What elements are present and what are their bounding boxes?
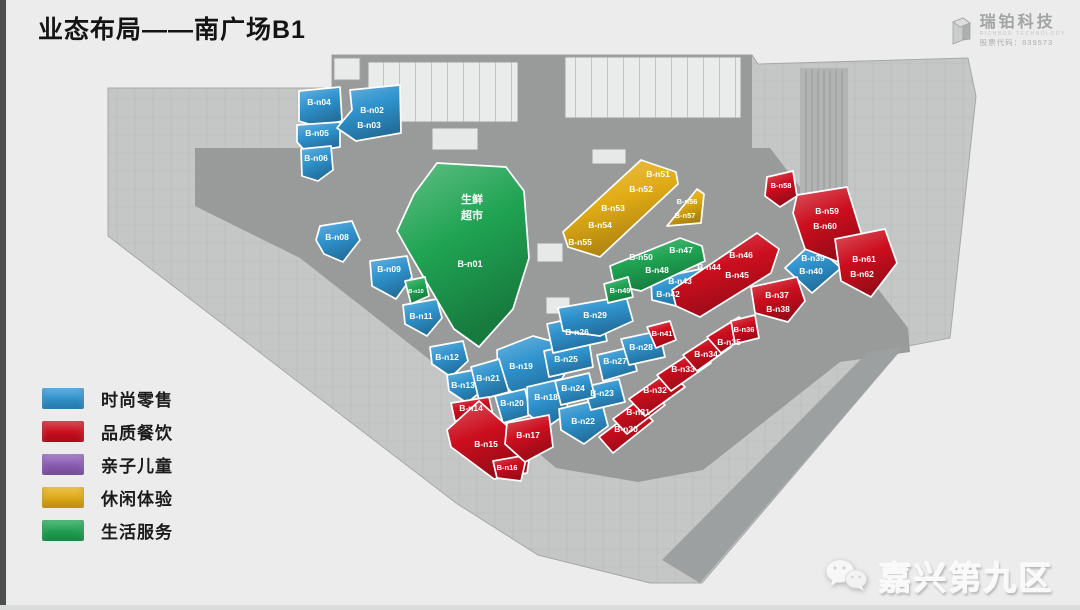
unit-B-n04 — [299, 87, 342, 127]
legend-item-retail: 时尚零售 — [42, 388, 173, 409]
unit-label-生鲜: 生鲜 — [461, 192, 483, 206]
unit-label-B-n20: B-n20 — [500, 398, 524, 408]
unit-label-B-n45: B-n45 — [725, 270, 749, 280]
legend-label-leisure: 休闲体验 — [101, 485, 173, 510]
unit-label-B-n49: B-n49 — [610, 286, 631, 295]
legend-label-kids: 亲子儿童 — [101, 452, 173, 477]
unit-label-B-n17: B-n17 — [516, 430, 540, 440]
structure-block-east — [565, 57, 741, 118]
unit-label-B-n44: B-n44 — [697, 262, 721, 272]
unit-label-B-n47: B-n47 — [669, 245, 693, 255]
unit-label-B-n19: B-n19 — [509, 361, 533, 371]
watermark-text: 嘉兴第九区 — [879, 552, 1054, 600]
unit-label-B-n32: B-n32 — [643, 385, 667, 395]
unit-label-B-n60: B-n60 — [813, 221, 837, 231]
unit-label-B-n27: B-n27 — [603, 356, 627, 366]
legend-swatch-leisure — [42, 487, 84, 508]
unit-label-B-n26: B-n26 — [565, 327, 589, 337]
unit-label-B-n06: B-n06 — [304, 153, 328, 163]
legend-swatch-kids — [42, 454, 84, 475]
company-logo: 瑞铂科技 RICHBOR TECHNOLOGY 股票代码：839573 — [949, 14, 1066, 48]
unit-label-B-n24: B-n24 — [561, 383, 585, 393]
unit-label-B-n56: B-n56 — [677, 197, 698, 206]
legend: 时尚零售品质餐饮亲子儿童休闲体验生活服务 — [42, 388, 173, 553]
core-3 — [592, 149, 626, 164]
unit-label-B-n52: B-n52 — [629, 184, 653, 194]
legend-item-life: 生活服务 — [42, 520, 173, 541]
unit-label-B-n55: B-n55 — [568, 237, 592, 247]
unit-label-B-n37: B-n37 — [765, 290, 789, 300]
unit-label-B-n43: B-n43 — [668, 276, 692, 286]
unit-label-B-n02: B-n02 — [360, 105, 384, 115]
unit-label-B-n54: B-n54 — [588, 220, 612, 230]
unit-label-B-n35: B-n35 — [717, 337, 741, 347]
slide-left-edge — [0, 0, 6, 610]
unit-label-B-n04: B-n04 — [307, 97, 331, 107]
unit-label-B-n53: B-n53 — [601, 203, 625, 213]
unit-label-B-n31: B-n31 — [626, 407, 650, 417]
legend-label-life: 生活服务 — [101, 518, 173, 543]
unit-label-B-n39: B-n39 — [801, 253, 825, 263]
unit-label-B-n40: B-n40 — [799, 266, 823, 276]
unit-label-B-n05: B-n05 — [305, 128, 329, 138]
unit-label-B-n12: B-n12 — [435, 352, 459, 362]
unit-label-B-n11: B-n11 — [409, 311, 432, 321]
unit-label-B-n41: B-n41 — [652, 329, 673, 338]
legend-swatch-retail — [42, 388, 84, 409]
unit-label-B-n13: B-n13 — [451, 380, 475, 390]
unit-label-B-n22: B-n22 — [571, 416, 595, 426]
unit-label-B-n34: B-n34 — [694, 349, 718, 359]
unit-label-B-n48: B-n48 — [645, 265, 669, 275]
unit-label-B-n14: B-n14 — [459, 403, 483, 413]
legend-label-dining: 品质餐饮 — [101, 419, 173, 444]
legend-item-leisure: 休闲体验 — [42, 487, 173, 508]
page-title: 业态布局——南广场B1 — [38, 10, 306, 46]
watermark: 嘉兴第九区 — [823, 552, 1054, 600]
logo-text: 瑞铂科技 RICHBOR TECHNOLOGY 股票代码：839573 — [980, 14, 1066, 48]
logo-stock-code: 股票代码：839573 — [980, 39, 1066, 48]
structure-small — [334, 58, 360, 80]
legend-swatch-dining — [42, 421, 84, 442]
logo-cube-icon — [949, 15, 973, 47]
unit-label-B-n01: B-n01 — [457, 259, 482, 269]
unit-label-超市: 超市 — [460, 208, 483, 222]
unit-label-B-n30: B-n30 — [614, 424, 638, 434]
unit-label-B-n42: B-n42 — [656, 289, 680, 299]
legend-label-retail: 时尚零售 — [101, 386, 173, 411]
unit-label-B-n15: B-n15 — [474, 439, 498, 449]
core-1 — [537, 243, 563, 262]
unit-label-B-n51: B-n51 — [646, 169, 670, 179]
wechat-icon — [823, 557, 869, 595]
unit-label-B-n57: B-n57 — [675, 211, 696, 220]
unit-label-B-n59: B-n59 — [815, 206, 839, 216]
unit-label-B-n29: B-n29 — [583, 310, 607, 320]
unit-label-B-n61: B-n61 — [852, 254, 876, 264]
unit-label-B-n16: B-n16 — [497, 463, 518, 472]
unit-label-B-n46: B-n46 — [729, 250, 753, 260]
logo-company-name: 瑞铂科技 — [980, 14, 1066, 32]
unit-label-B-n62: B-n62 — [850, 269, 874, 279]
unit-label-B-n28: B-n28 — [629, 342, 653, 352]
core-4 — [432, 128, 478, 150]
legend-item-dining: 品质餐饮 — [42, 421, 173, 442]
legend-item-kids: 亲子儿童 — [42, 454, 173, 475]
unit-label-B-n23: B-n23 — [590, 388, 614, 398]
slide-canvas: B-n04B-n05B-n02B-n03B-n06B-n08B-n09B-n11… — [0, 0, 1080, 610]
slide-bottom-edge — [0, 605, 1080, 610]
unit-label-B-n38: B-n38 — [766, 304, 790, 314]
unit-label-B-n50: B-n50 — [629, 252, 653, 262]
legend-swatch-life — [42, 520, 84, 541]
unit-label-B-n33: B-n33 — [671, 364, 695, 374]
unit-label-B-n21: B-n21 — [476, 373, 500, 383]
unit-label-B-n08: B-n08 — [325, 232, 349, 242]
unit-label-B-n18: B-n18 — [534, 392, 558, 402]
unit-label-B-n25: B-n25 — [554, 354, 578, 364]
unit-label-B-n03: B-n03 — [357, 120, 381, 130]
unit-label-B-n09: B-n09 — [377, 264, 401, 274]
unit-label-B-n58: B-n58 — [771, 181, 792, 190]
unit-label-B-n36: B-n36 — [734, 325, 755, 334]
unit-label-B-n10: B-n10 — [408, 289, 423, 295]
